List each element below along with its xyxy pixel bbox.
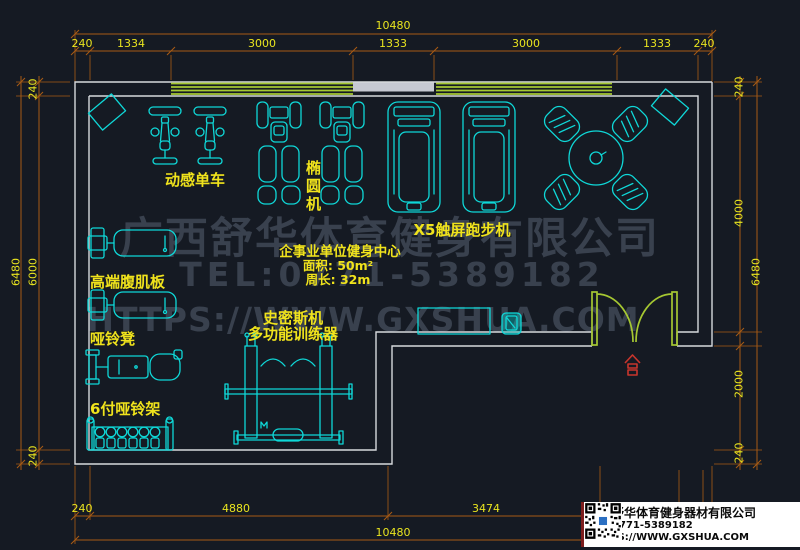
room-perimeter: 周长: 32m: [306, 269, 371, 288]
dim-right-seg: 240: [733, 77, 746, 98]
dim-bottom-overall: 10480: [376, 526, 411, 539]
qr-code: [584, 502, 622, 540]
label-treadmill: X5触屏跑步机: [413, 219, 510, 240]
label-smith-2: 多功能训练器: [248, 323, 338, 344]
cad-drawing-canvas: 广西舒华体育健身有限公司 TEL:0771-5389182 HTTPS://WW…: [0, 0, 800, 550]
label-dumbbell-rack: 6付哑铃架: [90, 398, 160, 419]
dim-top-overall: 10480: [376, 19, 411, 32]
dumbbell-rack-symbol: [87, 417, 173, 450]
label-ab-board: 高端腹肌板: [90, 271, 165, 292]
dim-bottom-seg: 4880: [222, 502, 250, 515]
spin-bike-symbol: [149, 107, 181, 164]
spin-bike-symbol: [194, 107, 226, 164]
dim-right-seg: 4000: [733, 199, 746, 227]
dim-right-seg: 240: [733, 443, 746, 464]
dim-bottom-seg: 3474: [472, 502, 500, 515]
adjustable-bench-symbol: [86, 350, 182, 384]
dim-left-seg: 240: [27, 446, 40, 467]
dim-bottom-seg: 240: [72, 502, 93, 515]
dim-top-seg: 1333: [643, 37, 671, 50]
double-door: [592, 292, 677, 345]
reception-desk-symbol: [418, 308, 490, 334]
dim-top-seg: 3000: [248, 37, 276, 50]
label-dumbbell-bench: 哑铃凳: [90, 328, 135, 349]
dim-top-seg: 240: [72, 37, 93, 50]
dim-top-seg: 3000: [512, 37, 540, 50]
dim-left-seg: 6000: [27, 258, 40, 286]
speaker-symbol: [651, 89, 688, 125]
water-dispenser-symbol: [502, 313, 521, 334]
dim-top-seg: 240: [694, 37, 715, 50]
speaker-symbol: [88, 94, 125, 130]
treadmill-symbol: [388, 102, 440, 212]
ab-board-symbol: [88, 228, 176, 258]
label-spin-bike: 动感单车: [165, 169, 225, 190]
dim-top-seg: 1334: [117, 37, 145, 50]
label-elliptical: 椭圆机: [303, 160, 324, 214]
elliptical-symbol: [320, 102, 364, 204]
dim-left-overall: 6480: [10, 258, 23, 286]
lintel: [353, 83, 434, 92]
table-and-chairs-symbol: [541, 103, 651, 213]
elliptical-symbol: [257, 102, 301, 204]
title-block: 广西舒华体育健身器材有限公司 TEL:0771-5389182 HTTPS://…: [584, 502, 800, 547]
dim-top-seg: 1333: [379, 37, 407, 50]
treadmill-symbol: [463, 102, 515, 212]
dim-right-seg: 2000: [733, 370, 746, 398]
dumbbell-bench-symbol: [88, 290, 176, 320]
dim-right-overall: 6480: [750, 258, 763, 286]
dim-left-seg: 240: [27, 79, 40, 100]
smith-machine-symbol: [225, 333, 352, 444]
entrance-marker-icon: [625, 355, 640, 375]
